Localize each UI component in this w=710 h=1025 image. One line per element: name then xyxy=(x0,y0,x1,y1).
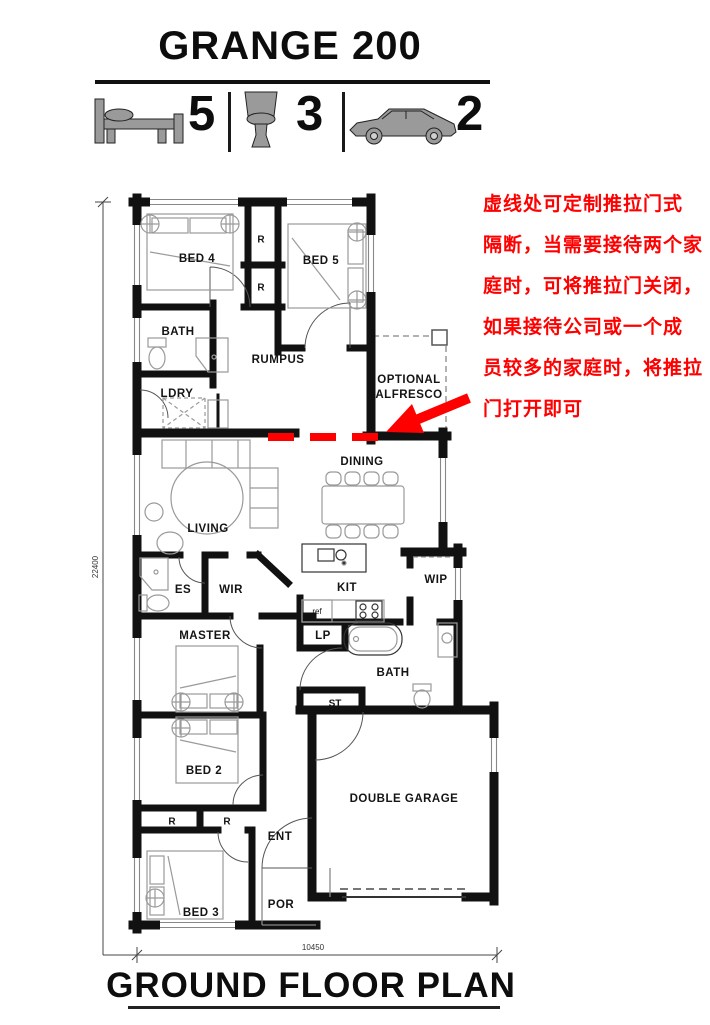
room-label-wip: WIP xyxy=(424,574,447,586)
room-label-lp: LP xyxy=(315,630,331,642)
dimension-depth: 22400 xyxy=(91,555,100,578)
room-label-bed4: BED 4 xyxy=(179,253,215,265)
room-label-es: ES xyxy=(175,584,191,596)
floor-plan-caption: GROUND FLOOR PLAN xyxy=(0,966,622,1006)
interior-walls xyxy=(137,202,458,925)
room-label-st: ST xyxy=(329,699,342,710)
red-arrow xyxy=(386,398,469,433)
page-root: GRANGE 200 5 3 2 xyxy=(0,0,710,1025)
caption-underline xyxy=(128,1006,500,1009)
room-label-garage: DOUBLE GARAGE xyxy=(350,793,459,805)
room-label-ldry: LDRY xyxy=(161,388,194,400)
room-label-robe: R xyxy=(257,235,265,246)
room-label-alfresco: ALFRESCO xyxy=(375,389,442,401)
room-label-ent: ENT xyxy=(268,831,293,843)
room-label-robe: R xyxy=(257,283,265,294)
room-label-master: MASTER xyxy=(179,630,231,642)
room-label-kit: KIT xyxy=(337,582,357,594)
room-label-bed2: BED 2 xyxy=(186,765,222,777)
floor-plan-svg: 22400 10450 xyxy=(0,0,710,1025)
room-label-dining: DINING xyxy=(340,456,383,468)
room-label-wir: WIR xyxy=(219,584,243,596)
room-label-por: POR xyxy=(268,899,295,911)
room-label-ref: ref xyxy=(312,607,322,616)
room-label-alfresco: OPTIONAL xyxy=(377,374,440,386)
room-label-robe: R xyxy=(168,817,176,828)
room-label-bed5: BED 5 xyxy=(303,255,339,267)
room-label-bath-top: BATH xyxy=(161,326,194,338)
room-label-living: LIVING xyxy=(187,523,228,535)
room-label-bath-main: BATH xyxy=(376,667,409,679)
garage-door xyxy=(340,889,468,897)
room-label-rumpus: RUMPUS xyxy=(252,354,305,366)
room-label-bed3: BED 3 xyxy=(183,907,219,919)
room-label-robe: R xyxy=(223,817,231,828)
dimension-width: 10450 xyxy=(302,943,325,952)
